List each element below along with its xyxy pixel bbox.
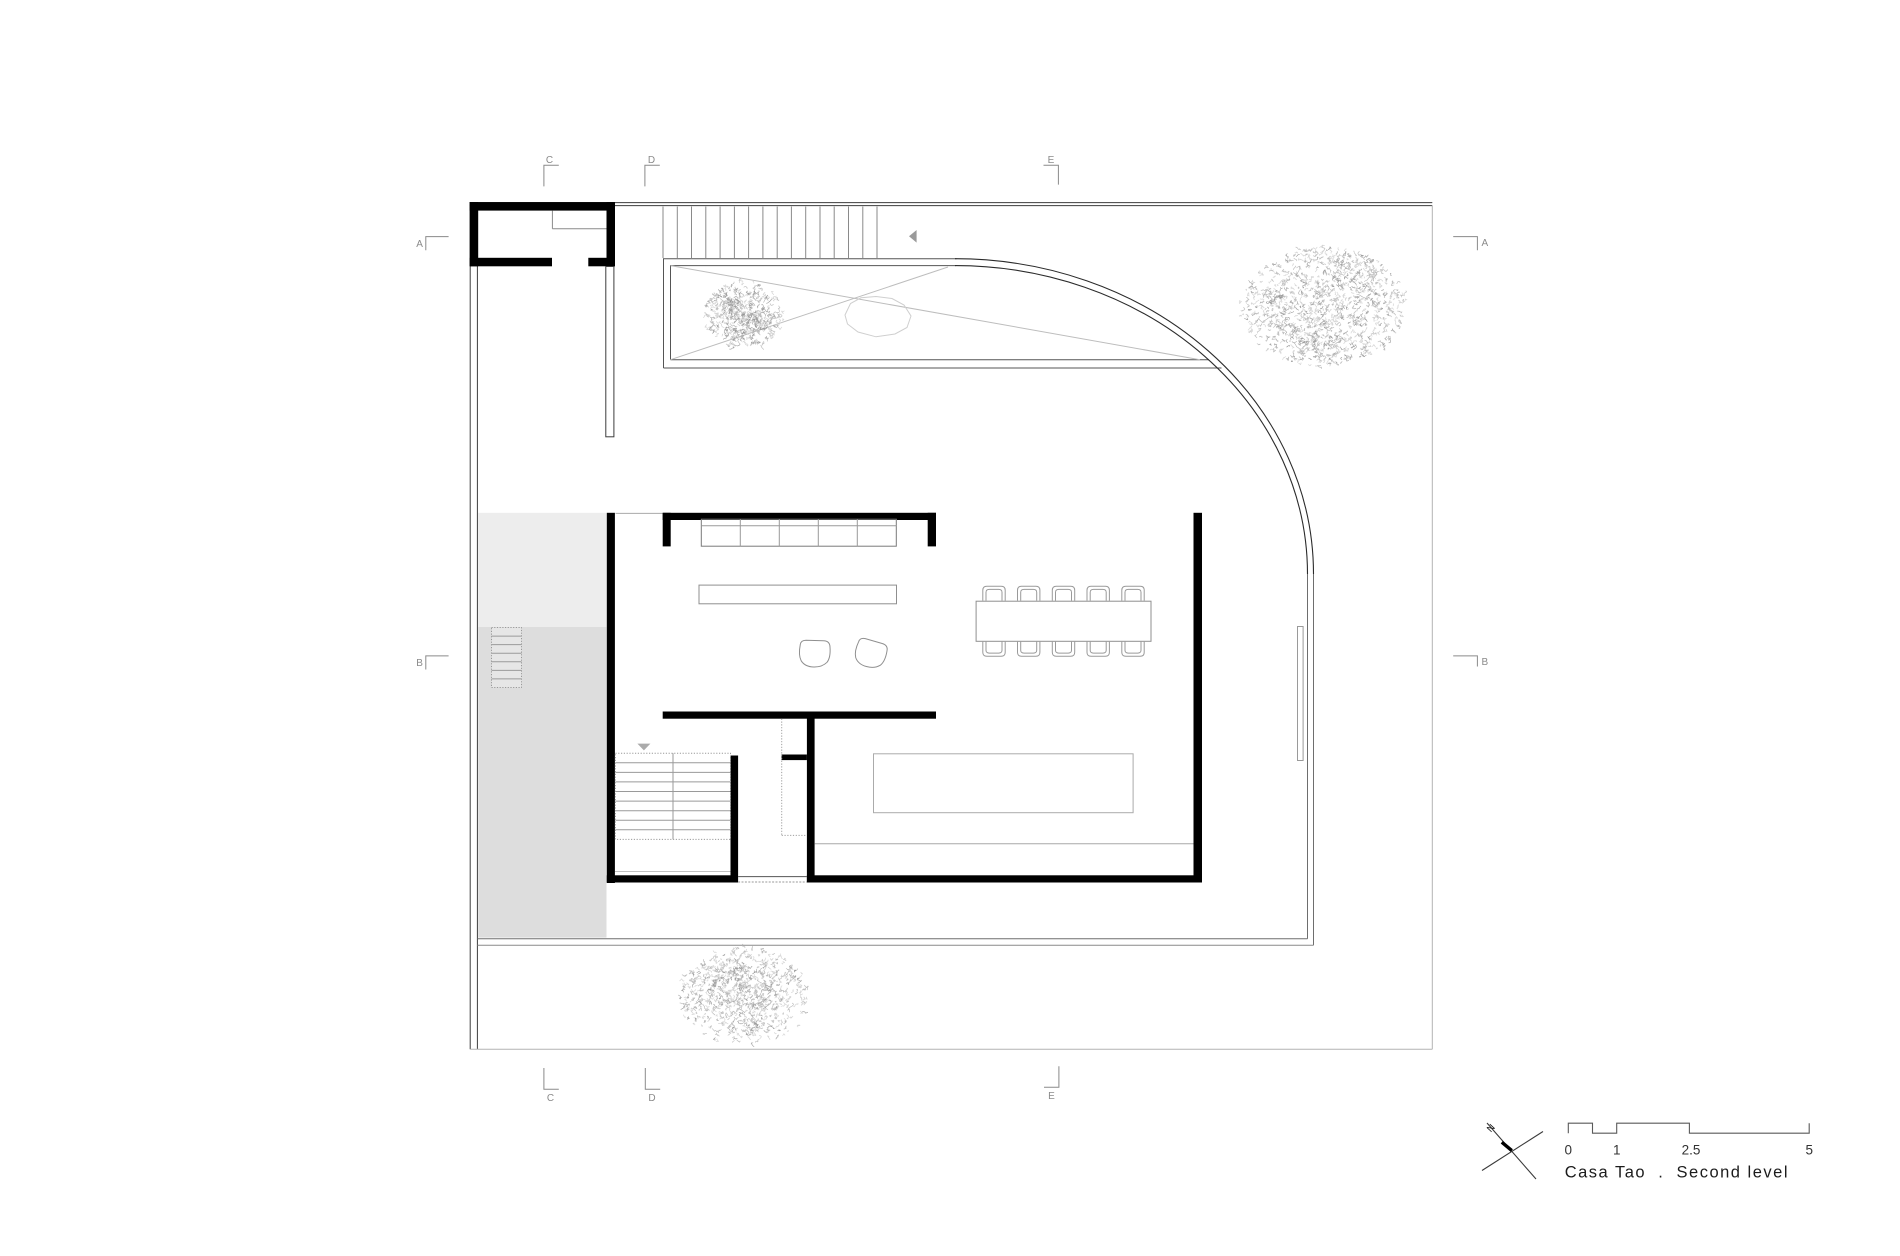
svg-text:E: E	[1048, 1091, 1055, 1102]
svg-text:5: 5	[1805, 1143, 1813, 1158]
svg-text:0: 0	[1565, 1143, 1573, 1158]
svg-text:B: B	[1481, 657, 1488, 668]
svg-text:1: 1	[1613, 1143, 1621, 1158]
svg-text:D: D	[648, 155, 655, 166]
svg-text:A: A	[1481, 238, 1488, 249]
svg-text:2.5: 2.5	[1682, 1143, 1701, 1158]
svg-text:B: B	[416, 658, 423, 669]
svg-text:E: E	[1048, 155, 1055, 166]
svg-text:Casa Tao . Second level: Casa Tao . Second level	[1565, 1164, 1789, 1182]
svg-text:C: C	[547, 1093, 554, 1104]
svg-text:A: A	[416, 239, 423, 250]
svg-text:C: C	[546, 155, 553, 166]
svg-text:D: D	[648, 1093, 655, 1104]
